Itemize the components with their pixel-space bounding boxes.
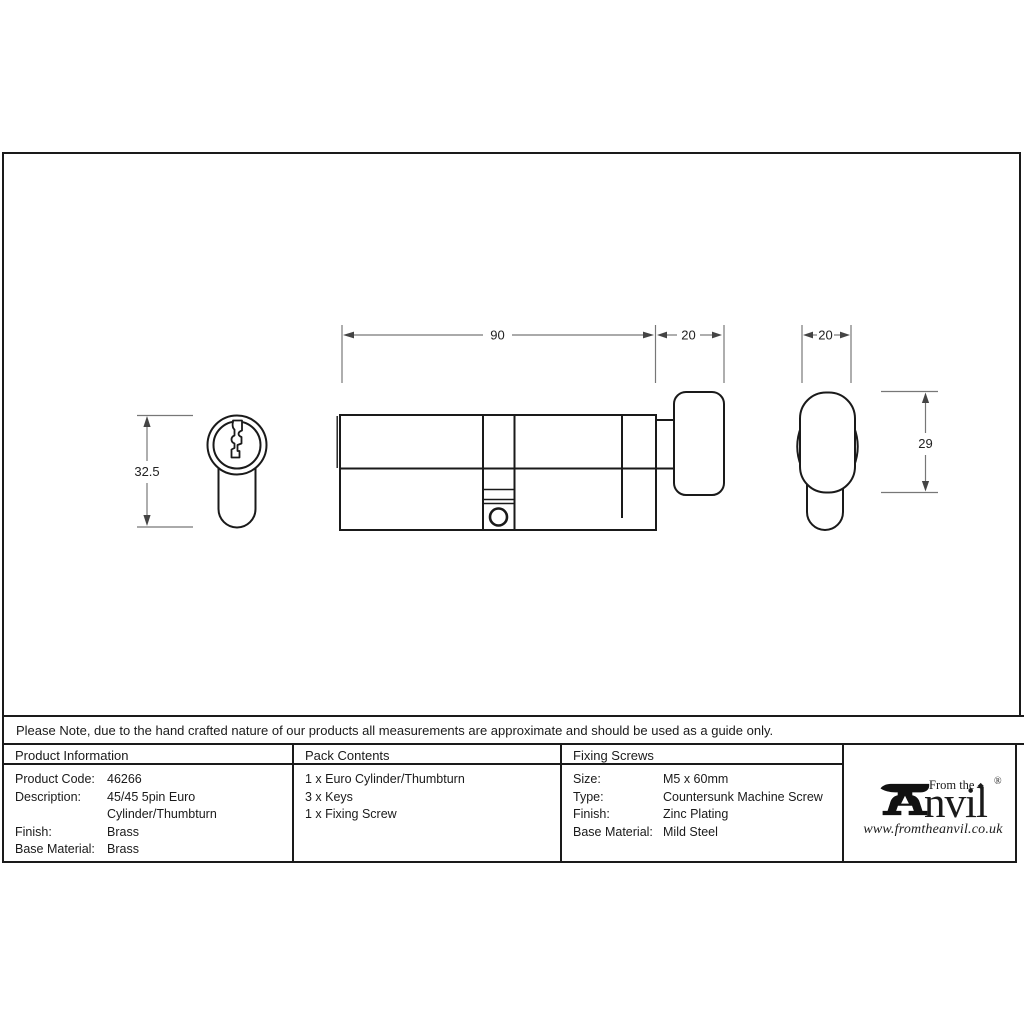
note-bar: Please Note, due to the hand crafted nat… <box>2 715 1024 745</box>
arrow-down <box>922 481 929 492</box>
arrow-down <box>143 515 150 526</box>
logo-wordmark: nvil <box>924 782 987 825</box>
table-row: Description: 45/45 5pin Euro Cylinder/Th… <box>15 789 292 824</box>
list-item: 1 x Fixing Screw <box>305 806 560 824</box>
arrow-right <box>712 332 722 339</box>
row-value: Countersunk Machine Screw <box>663 789 842 807</box>
anvil-icon <box>880 779 930 823</box>
row-value: 46266 <box>107 771 292 789</box>
technical-drawing-panel: 32.5 <box>2 152 1021 717</box>
list-item: 3 x Keys <box>305 789 560 807</box>
product-information-body: Product Code: 46266 Description: 45/45 5… <box>4 765 292 861</box>
row-label: Finish: <box>573 806 663 824</box>
row-value: Brass <box>107 841 292 859</box>
table-row: Base Material: Mild Steel <box>573 824 842 842</box>
arrow-left <box>657 332 667 339</box>
side-view-cylinder: 90 20 <box>337 325 724 530</box>
thumbturn-face <box>800 393 855 493</box>
thumbturn-side <box>674 392 724 495</box>
sheet: 32.5 <box>2 152 1017 863</box>
registered-mark: ® <box>994 776 1002 787</box>
end-view-thumbturn: 20 29 <box>797 325 942 530</box>
table-row: Base Material: Brass <box>15 841 292 859</box>
row-label: Finish: <box>15 824 107 842</box>
front-view-cylinder-profile: 32.5 <box>127 416 267 528</box>
row-label: Product Code: <box>15 771 107 789</box>
brand-logo-cell: From the ◆ nvil ® www.fromtheanvil.co.uk <box>842 745 1015 861</box>
technical-drawing: 32.5 <box>4 154 1019 715</box>
pack-contents-body: 1 x Euro Cylinder/Thumbturn 3 x Keys 1 x… <box>292 765 560 861</box>
arrow-up <box>922 393 929 404</box>
arrow-right <box>840 332 850 339</box>
spec-table: Product Information Pack Contents Fixing… <box>2 743 1017 863</box>
table-row: Finish: Brass <box>15 824 292 842</box>
note-text: Please Note, due to the hand crafted nat… <box>16 723 773 738</box>
list-item: 1 x Euro Cylinder/Thumbturn <box>305 771 560 789</box>
fixing-screw-hole <box>490 509 507 526</box>
arrow-up <box>143 416 150 427</box>
table-row: Finish: Zinc Plating <box>573 806 842 824</box>
table-row: Product Code: 46266 <box>15 771 292 789</box>
row-label: Type: <box>573 789 663 807</box>
dim-turn-width-label: 20 <box>818 328 832 343</box>
row-label: Base Material: <box>15 841 107 859</box>
arrow-left <box>803 332 813 339</box>
table-row: Type: Countersunk Machine Screw <box>573 789 842 807</box>
row-value: Zinc Plating <box>663 806 842 824</box>
logo-url: www.fromtheanvil.co.uk <box>852 822 1014 838</box>
row-value: Mild Steel <box>663 824 842 842</box>
dim-body-length-label: 90 <box>490 328 504 343</box>
row-label: Description: <box>15 789 107 824</box>
table-row: Size: M5 x 60mm <box>573 771 842 789</box>
header-fixing-screws: Fixing Screws <box>560 745 842 765</box>
arrow-right <box>643 332 654 339</box>
arrow-left <box>343 332 354 339</box>
dim-turn-length-label: 20 <box>681 328 695 343</box>
header-product-information: Product Information <box>4 745 292 765</box>
row-value: 45/45 5pin Euro Cylinder/Thumbturn <box>107 789 292 824</box>
dim-turn-height-label: 29 <box>918 436 932 451</box>
spec-sheet-page: { "note": "Please Note, due to the hand … <box>0 0 1024 1024</box>
row-label: Size: <box>573 771 663 789</box>
header-pack-contents: Pack Contents <box>292 745 560 765</box>
row-value: M5 x 60mm <box>663 771 842 789</box>
row-value: Brass <box>107 824 292 842</box>
fixing-screws-body: Size: M5 x 60mm Type: Countersunk Machin… <box>560 765 842 861</box>
dim-profile-height-label: 32.5 <box>134 464 159 479</box>
row-label: Base Material: <box>573 824 663 842</box>
